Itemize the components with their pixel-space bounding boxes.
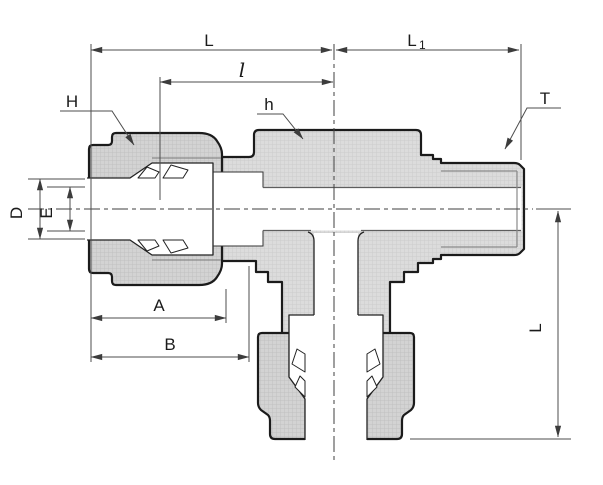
dim-E-label: E — [37, 207, 56, 218]
dim-A-label: A — [153, 296, 165, 315]
dim-A: A — [91, 296, 226, 318]
dim-L-top: L — [91, 31, 332, 50]
fitting-body — [222, 130, 524, 342]
dim-B: B — [91, 335, 249, 357]
dim-L-vertical: L — [526, 211, 558, 437]
callout-T-label: T — [540, 89, 550, 108]
branch-bore — [314, 233, 358, 315]
dim-D-label: D — [7, 207, 26, 219]
dim-L-vertical-label: L — [526, 323, 545, 332]
dim-l-label: l — [239, 58, 245, 82]
callout-T: T — [505, 89, 561, 149]
fitting-cross-section — [87, 130, 524, 441]
callout-H-label: H — [66, 92, 78, 111]
dim-l: l — [160, 58, 333, 82]
dim-B-label: B — [164, 335, 175, 354]
dim-L1-label: L — [407, 31, 416, 50]
fitting-drawing: L L 1 l H h T D — [0, 0, 603, 485]
dim-L-top-label: L — [204, 31, 213, 50]
callout-h-label: h — [264, 95, 273, 114]
dim-L1: L 1 — [336, 31, 519, 52]
dim-L1-subscript: 1 — [419, 38, 426, 52]
technical-drawing-canvas: L L 1 l H h T D — [0, 0, 603, 485]
callout-T-leader — [505, 108, 561, 149]
